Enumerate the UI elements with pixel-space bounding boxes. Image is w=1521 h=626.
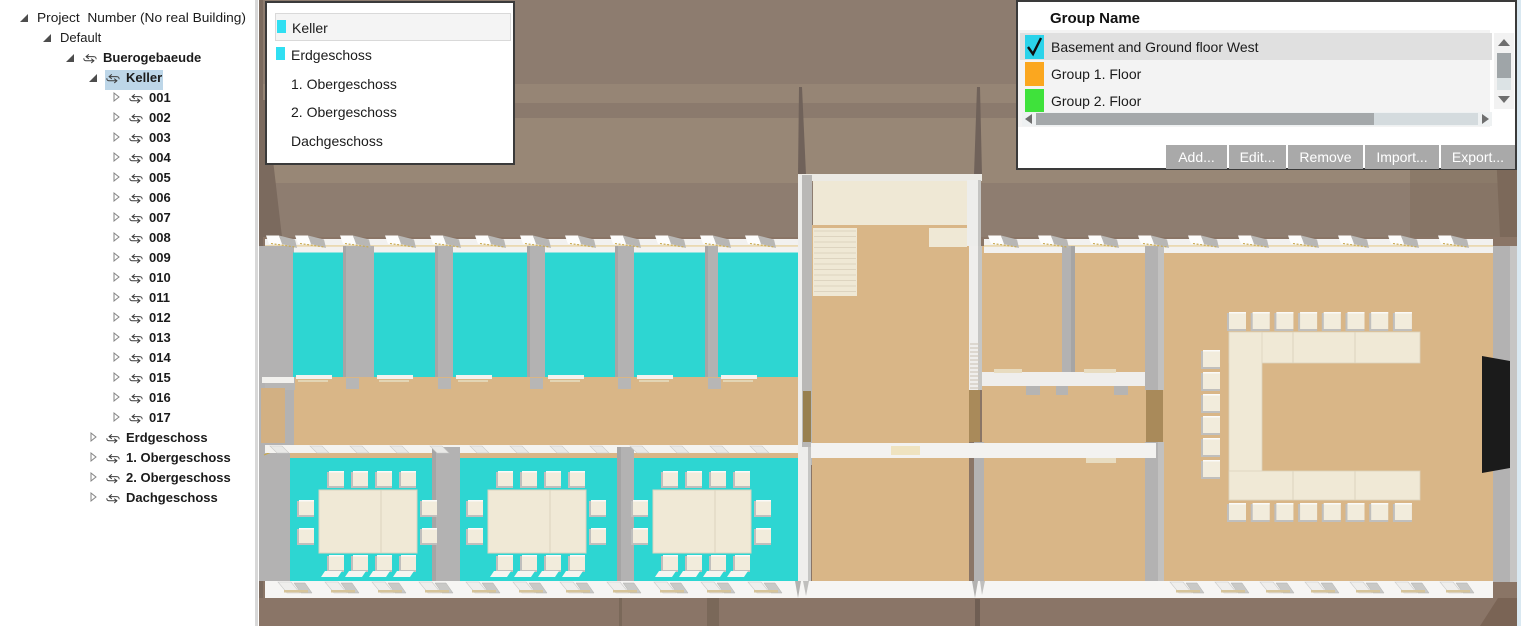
svg-text:005: 005 <box>149 170 171 185</box>
svg-text:1. Obergeschoss: 1. Obergeschoss <box>126 450 231 465</box>
svg-text:Project Number (No real Build: Project Number (No real Building) <box>37 10 246 25</box>
svg-text:Buerogebaeude: Buerogebaeude <box>103 50 201 65</box>
svg-text:002: 002 <box>149 110 171 125</box>
svg-text:2. Obergeschoss: 2. Obergeschoss <box>126 470 231 485</box>
svg-text:009: 009 <box>149 250 171 265</box>
svg-text:001: 001 <box>149 90 171 105</box>
svg-text:008: 008 <box>149 230 171 245</box>
svg-text:Default: Default <box>60 30 102 45</box>
svg-text:014: 014 <box>149 350 171 365</box>
svg-text:011: 011 <box>149 290 170 305</box>
svg-text:006: 006 <box>149 190 171 205</box>
svg-text:013: 013 <box>149 330 171 345</box>
svg-text:017: 017 <box>149 410 171 425</box>
svg-text:Erdgeschoss: Erdgeschoss <box>126 430 208 445</box>
svg-text:Dachgeschoss: Dachgeschoss <box>126 490 218 505</box>
svg-text:010: 010 <box>149 270 171 285</box>
svg-text:012: 012 <box>149 310 171 325</box>
svg-text:007: 007 <box>149 210 171 225</box>
svg-text:Keller: Keller <box>126 70 162 85</box>
svg-text:016: 016 <box>149 390 171 405</box>
svg-text:015: 015 <box>149 370 171 385</box>
svg-text:004: 004 <box>149 150 171 165</box>
svg-text:003: 003 <box>149 130 171 145</box>
